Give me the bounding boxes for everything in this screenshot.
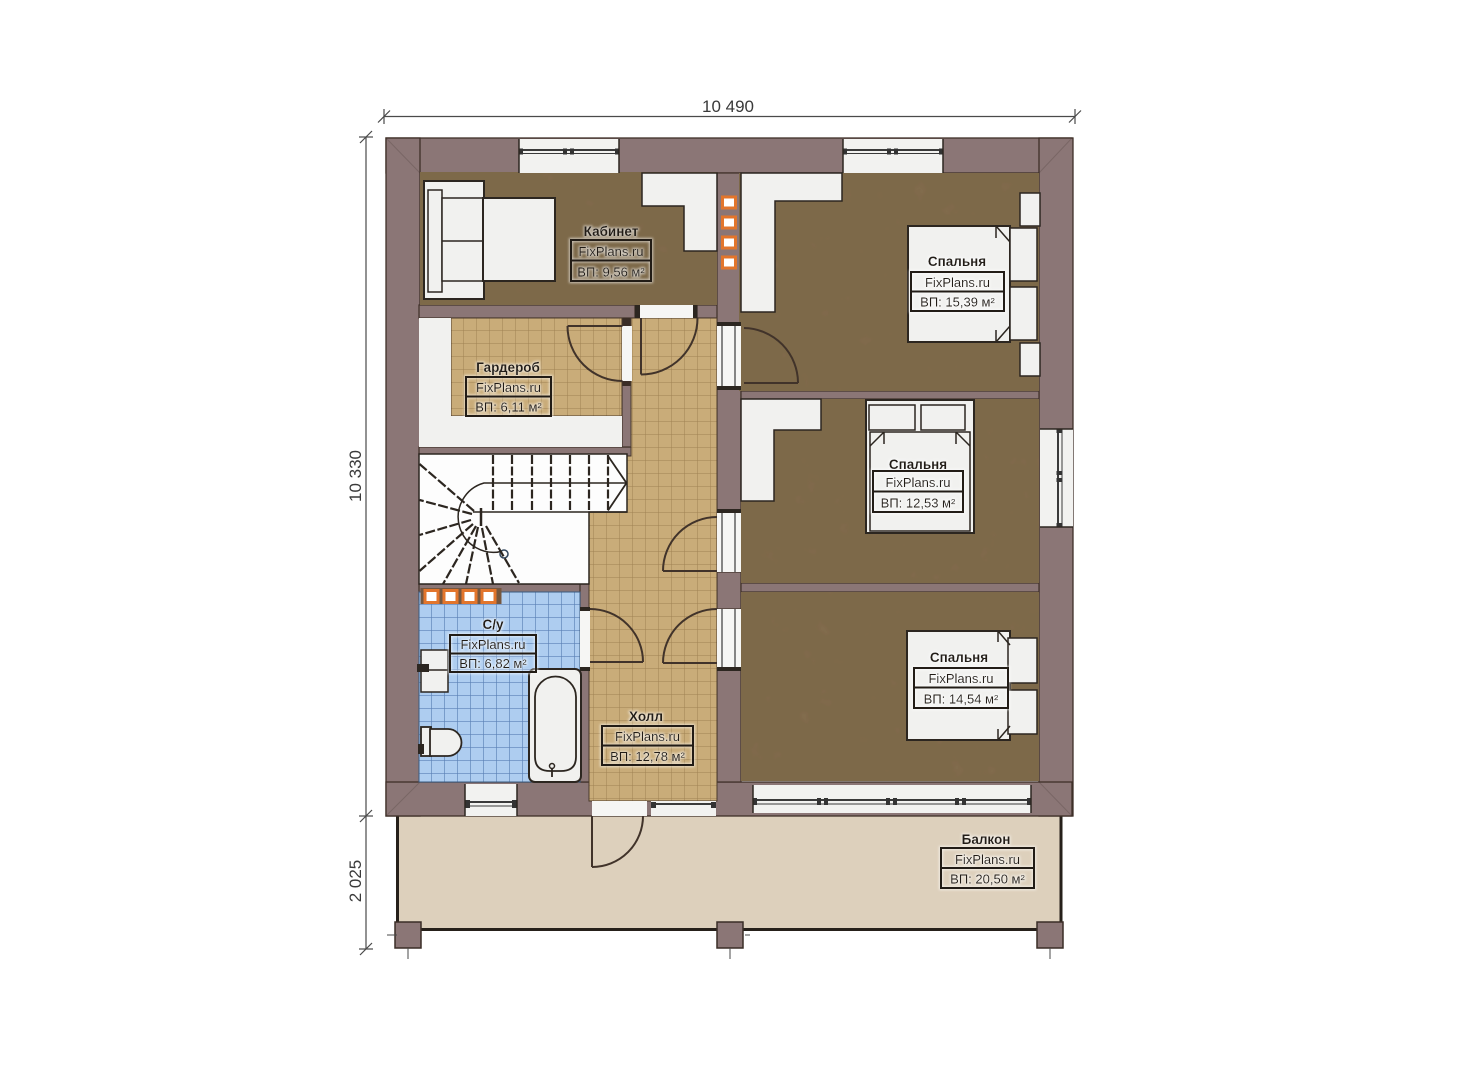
svg-text:Спальня: Спальня (930, 650, 988, 665)
svg-text:ВП: 12,53 м²: ВП: 12,53 м² (881, 496, 956, 511)
svg-text:Гардероб: Гардероб (476, 360, 540, 375)
svg-text:FixPlans.ru: FixPlans.ru (476, 380, 541, 395)
svg-text:FixPlans.ru: FixPlans.ru (578, 244, 643, 259)
svg-text:ВП: 20,50 м²: ВП: 20,50 м² (950, 872, 1025, 887)
svg-text:Спальня: Спальня (928, 254, 986, 269)
svg-text:ВП: 6,11 м²: ВП: 6,11 м² (475, 400, 542, 415)
svg-text:FixPlans.ru: FixPlans.ru (925, 275, 990, 290)
svg-text:FixPlans.ru: FixPlans.ru (460, 637, 525, 652)
svg-text:10 330: 10 330 (346, 450, 365, 502)
svg-text:FixPlans.ru: FixPlans.ru (885, 475, 950, 490)
svg-text:ВП: 12,78 м²: ВП: 12,78 м² (610, 749, 685, 764)
svg-text:Кабинет: Кабинет (584, 224, 639, 239)
svg-text:10 490: 10 490 (702, 97, 754, 116)
svg-text:FixPlans.ru: FixPlans.ru (955, 852, 1020, 867)
svg-text:ВП: 9,56 м²: ВП: 9,56 м² (577, 265, 645, 280)
svg-text:FixPlans.ru: FixPlans.ru (615, 729, 680, 744)
svg-text:Спальня: Спальня (889, 457, 947, 472)
svg-text:Холл: Холл (629, 709, 663, 724)
svg-text:FixPlans.ru: FixPlans.ru (928, 671, 993, 686)
svg-text:2 025: 2 025 (346, 860, 365, 903)
svg-text:ВП: 15,39 м²: ВП: 15,39 м² (920, 295, 995, 310)
svg-text:С/у: С/у (482, 617, 504, 632)
svg-text:ВП: 6,82 м²: ВП: 6,82 м² (459, 656, 527, 671)
svg-text:ВП: 14,54 м²: ВП: 14,54 м² (924, 692, 999, 707)
svg-text:Балкон: Балкон (962, 832, 1011, 847)
